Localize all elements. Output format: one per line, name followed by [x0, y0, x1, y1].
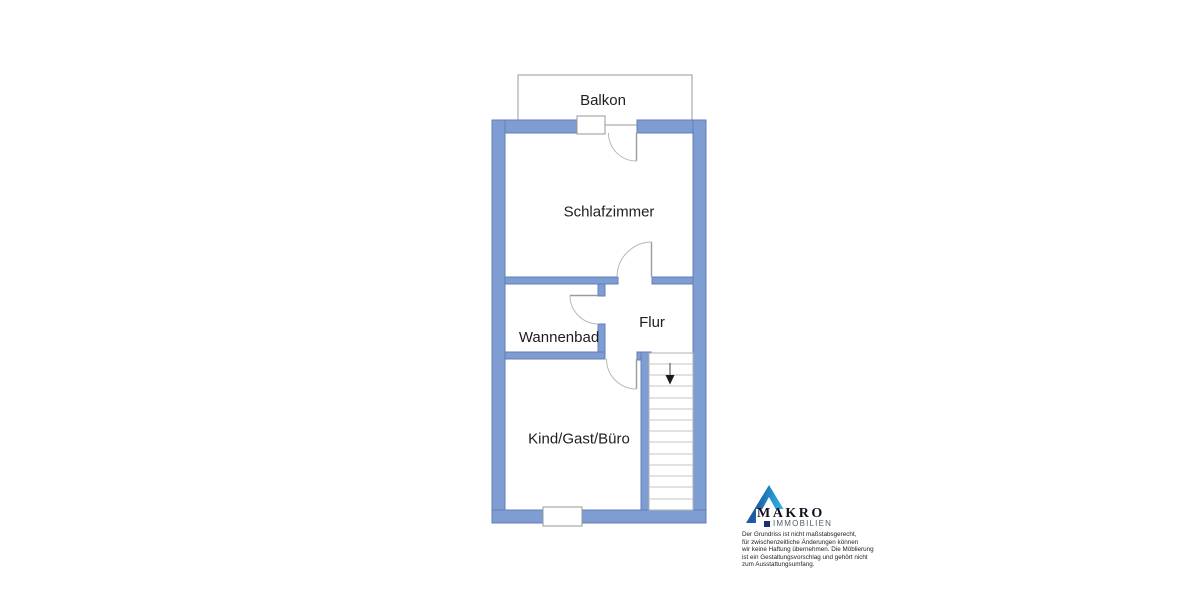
- doors: [570, 133, 652, 389]
- staircase: [649, 353, 693, 510]
- wall-schlafzimmer-divider-left: [505, 277, 618, 284]
- logo-division-name: IMMOBILIEN: [773, 519, 832, 528]
- logo-division-row: IMMOBILIEN: [764, 519, 832, 528]
- disclaimer-line: ist ein Gestaltungsvorschlag und gehört …: [742, 554, 892, 562]
- wall-wannenbad-flur-top: [598, 284, 605, 296]
- wall-schlafzimmer-divider-right: [652, 277, 693, 284]
- door-balcony: [609, 133, 637, 161]
- wall-left: [492, 120, 505, 523]
- disclaimer-line: Der Grundriss ist nicht maßstabsgerecht,: [742, 531, 892, 539]
- balcony-label: Balkon: [580, 92, 626, 109]
- floorplan-drawing: Balkon: [0, 0, 1200, 600]
- room-label-flur: Flur: [639, 314, 665, 331]
- logo-square-icon: [764, 521, 770, 527]
- door-wannenbad: [570, 296, 599, 325]
- wall-bottom: [492, 510, 706, 523]
- door-schlafzimmer: [617, 242, 652, 277]
- disclaimer-text: Der Grundriss ist nicht maßstabsgerecht,…: [742, 531, 892, 569]
- room-label-kind-gast-buero: Kind/Gast/Büro: [528, 431, 630, 448]
- disclaimer-line: wir keine Haftung übernehmen. Die Möblie…: [742, 546, 892, 554]
- room-label-wannenbad: Wannenbad: [519, 329, 599, 346]
- disclaimer-line: für zwischenzeitliche Änderungen können: [742, 539, 892, 547]
- wall-kind-divider: [505, 352, 605, 359]
- window-kind-gast-buero: [543, 507, 582, 526]
- window-balcony: [577, 116, 605, 134]
- door-kind-gast-buero: [607, 359, 637, 389]
- floorplan-page: Balkon: [0, 0, 1200, 600]
- disclaimer-line: zum Ausstattungsumfang.: [742, 561, 892, 569]
- room-label-schlafzimmer: Schlafzimmer: [564, 204, 655, 221]
- wall-right: [693, 120, 706, 523]
- wall-staircase: [641, 352, 649, 510]
